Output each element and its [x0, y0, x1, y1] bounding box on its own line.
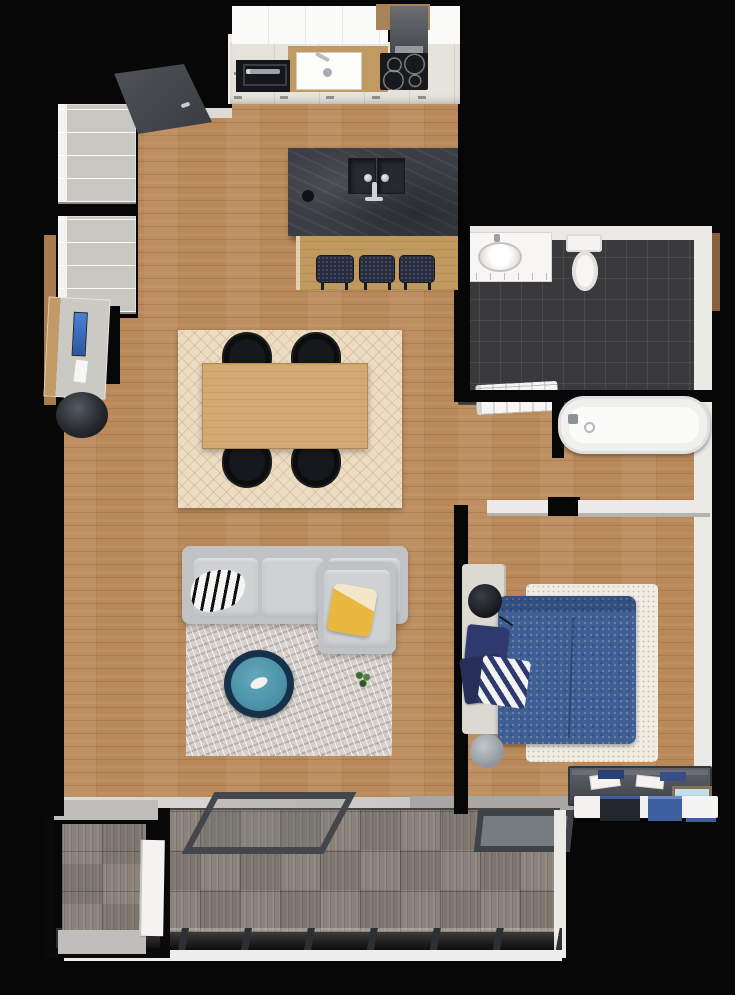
- floor-plan-scene: [0, 0, 735, 995]
- wall-bedroom-top-segment: [548, 497, 580, 516]
- nightstand-lamp-top[interactable]: [468, 584, 502, 618]
- bed-pillow-chevron[interactable]: [477, 655, 531, 709]
- wall-right: [694, 226, 712, 816]
- bar-stool-3[interactable]: [399, 255, 435, 283]
- oven-handle: [246, 69, 280, 74]
- vanity-faucet: [494, 234, 500, 242]
- cabinet-door-seams: [58, 104, 136, 202]
- bathtub-drain: [584, 422, 595, 433]
- vanity-sink: [478, 242, 522, 272]
- storage-box-white: [686, 796, 716, 822]
- wardrobe-cabinet-1[interactable]: [58, 104, 136, 204]
- upper-cabinet-right: [426, 6, 460, 44]
- storage-wall-top: [54, 800, 158, 820]
- dresser-drawer-unit[interactable]: [574, 796, 718, 818]
- toilet-tank[interactable]: [566, 234, 602, 252]
- ottoman[interactable]: [224, 650, 294, 718]
- kitchen-faucet: [315, 52, 330, 63]
- desk-paper: [73, 360, 88, 383]
- sink-drain: [323, 68, 332, 77]
- sofa-cushion-2: [262, 558, 324, 618]
- storage-box-blue: [648, 796, 682, 821]
- island-faucet-knob-right: [381, 174, 389, 182]
- bar-stool-2[interactable]: [359, 255, 395, 283]
- bedroom-wardrobe-right[interactable]: [578, 500, 710, 517]
- dresser-item-bin-2: [660, 772, 686, 781]
- dresser-item-bin-1: [598, 770, 624, 779]
- island-faucet-cross: [365, 197, 383, 201]
- desk-monitor: [72, 312, 88, 357]
- vanity-drawers: [462, 273, 550, 280]
- potted-plant[interactable]: [354, 670, 372, 688]
- storage-door[interactable]: [139, 840, 165, 936]
- oven-inner: [243, 64, 287, 86]
- bar-stool-1[interactable]: [316, 255, 354, 283]
- island-drain: [302, 190, 314, 202]
- dining-table[interactable]: [202, 363, 368, 449]
- island-faucet-knob-left: [364, 174, 372, 182]
- storage-room-deck: [62, 824, 146, 932]
- desk[interactable]: [43, 296, 110, 399]
- oven[interactable]: [236, 60, 290, 92]
- range-hood: [390, 6, 428, 56]
- kitchen-sink[interactable]: [296, 52, 362, 90]
- bathtub[interactable]: [558, 396, 710, 454]
- wall-edge-wood: [712, 233, 720, 311]
- yellow-pillow[interactable]: [326, 583, 378, 638]
- bedroom-wardrobe-left[interactable]: [487, 500, 549, 516]
- bathroom-vanity[interactable]: [460, 232, 552, 282]
- nightstand-lamp-bottom[interactable]: [470, 734, 504, 768]
- storage-wall-bottom: [58, 930, 146, 954]
- kitchen-island[interactable]: [288, 148, 458, 236]
- upper-cabinets: [232, 6, 388, 44]
- door-handle: [180, 102, 190, 109]
- bathtub-faucet: [568, 414, 578, 424]
- toilet[interactable]: [572, 251, 598, 291]
- storage-box-dark: [600, 796, 640, 821]
- cabinet-handles-row: [234, 96, 456, 99]
- desk-chair[interactable]: [56, 392, 108, 438]
- cooktop[interactable]: [380, 53, 428, 90]
